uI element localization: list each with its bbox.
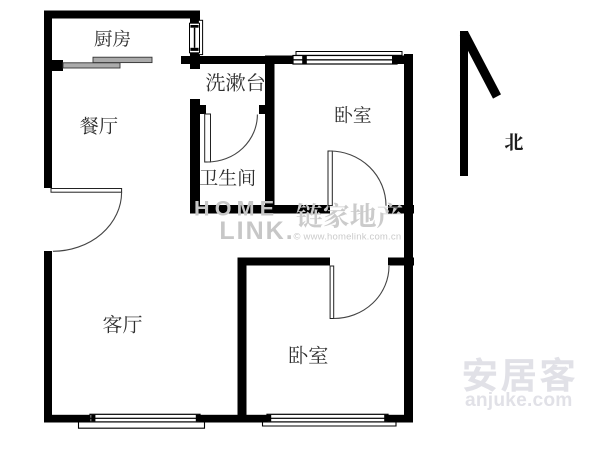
- svg-text:anjuke.com: anjuke.com: [465, 390, 573, 411]
- svg-text:LINK.: LINK.: [219, 217, 294, 245]
- svg-text:© www.homelink.com.cn: © www.homelink.com.cn: [294, 232, 402, 243]
